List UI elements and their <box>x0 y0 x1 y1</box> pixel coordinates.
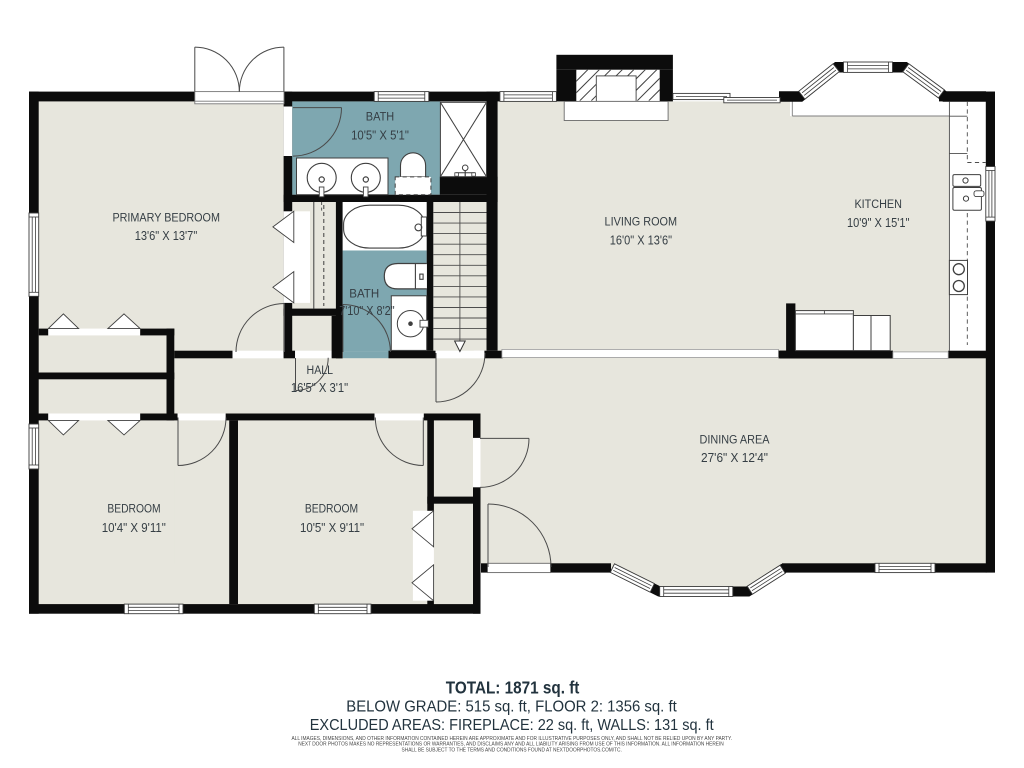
svg-text:EXCLUDED AREAS: FIREPLACE: 22: EXCLUDED AREAS: FIREPLACE: 22 sq. ft, WA… <box>310 717 714 734</box>
svg-text:10'9" X 15'1": 10'9" X 15'1" <box>847 215 910 230</box>
svg-text:7'10" X 8'2": 7'10" X 8'2" <box>339 303 394 318</box>
svg-text:10'5" X 9'11": 10'5" X 9'11" <box>300 520 364 535</box>
svg-text:13'6" X 13'7": 13'6" X 13'7" <box>135 228 198 243</box>
svg-text:DINING AREA: DINING AREA <box>700 433 771 447</box>
svg-text:HALL: HALL <box>307 363 334 377</box>
svg-text:KITCHEN: KITCHEN <box>854 197 902 211</box>
svg-text:BEDROOM: BEDROOM <box>107 501 160 515</box>
svg-text:BATH: BATH <box>366 109 394 123</box>
svg-text:27'6" X 12'4": 27'6" X 12'4" <box>701 450 768 465</box>
svg-text:BEDROOM: BEDROOM <box>305 501 358 515</box>
svg-text:10'5" X 5'1": 10'5" X 5'1" <box>351 127 409 142</box>
svg-text:16'5" X 3'1": 16'5" X 3'1" <box>291 380 348 395</box>
svg-text:TOTAL: 1871 sq. ft: TOTAL: 1871 sq. ft <box>446 677 580 697</box>
svg-text:SHALL BE SUBJECT TO THE TERMS: SHALL BE SUBJECT TO THE TERMS AND CONDIT… <box>402 747 622 753</box>
svg-text:LIVING ROOM: LIVING ROOM <box>605 215 678 229</box>
svg-text:PRIMARY BEDROOM: PRIMARY BEDROOM <box>112 210 220 224</box>
svg-text:BELOW GRADE: 515 sq. ft, FLOOR: BELOW GRADE: 515 sq. ft, FLOOR 2: 1356 s… <box>346 698 677 715</box>
svg-text:10'4" X 9'11": 10'4" X 9'11" <box>102 520 166 535</box>
svg-text:16'0" X 13'6": 16'0" X 13'6" <box>610 233 672 248</box>
svg-text:BATH: BATH <box>349 286 379 300</box>
